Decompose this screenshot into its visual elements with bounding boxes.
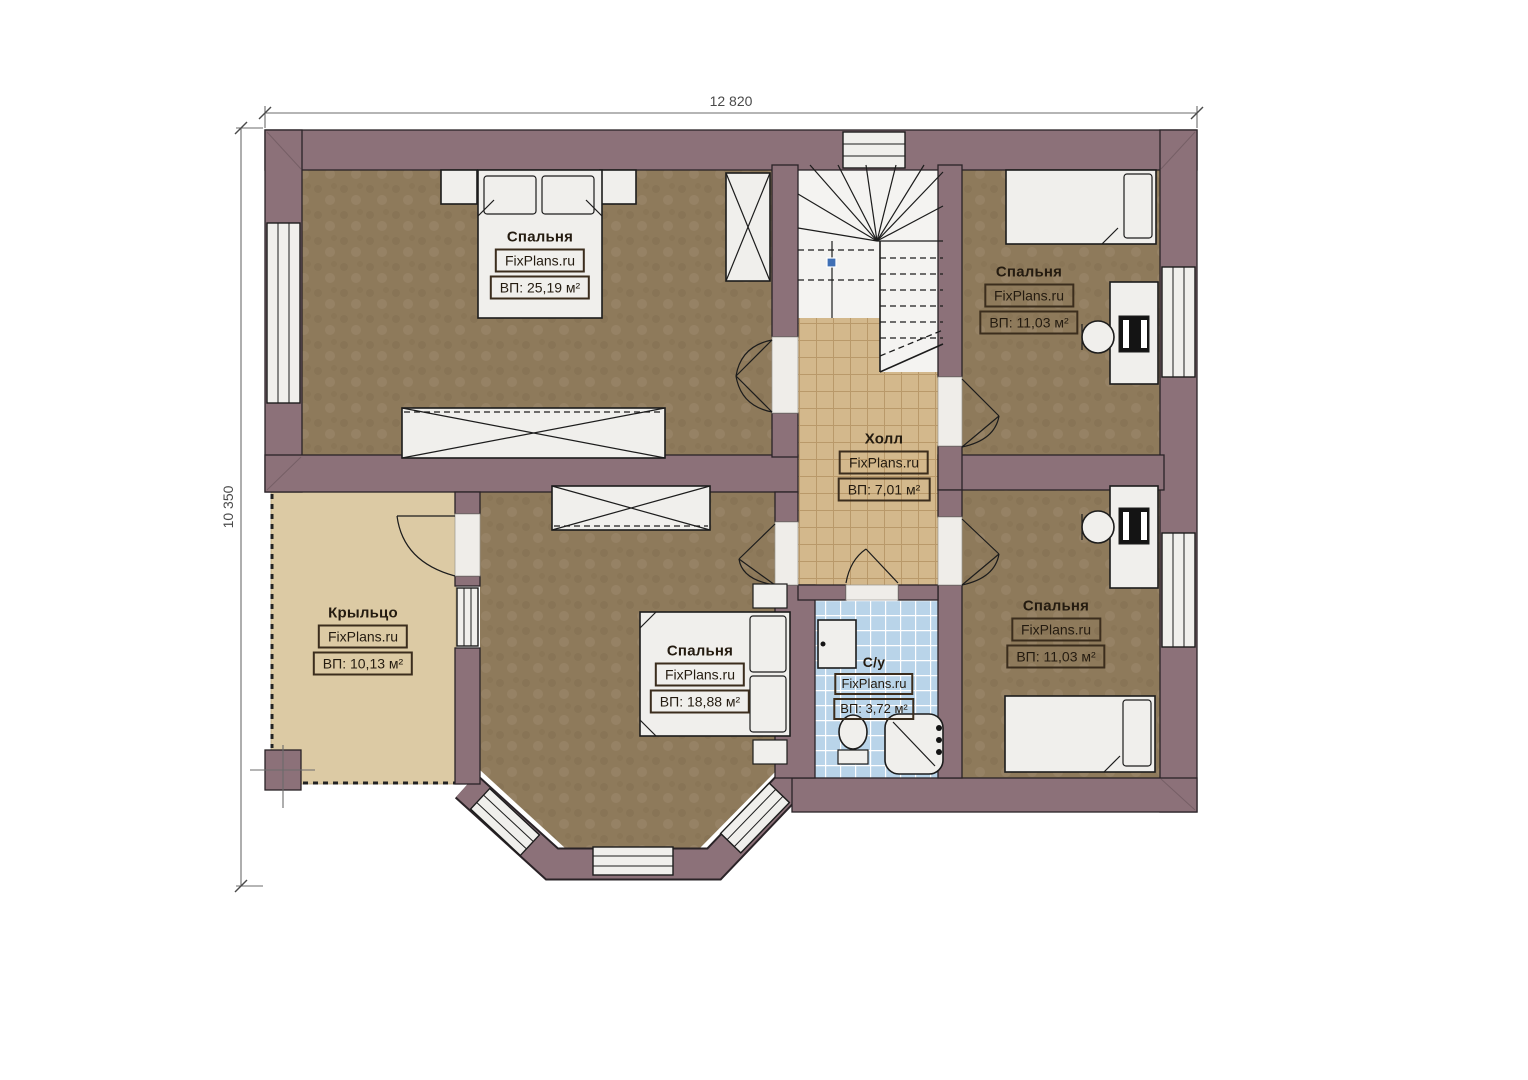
- room-name: Крыльцо: [328, 605, 398, 622]
- stair-handrail-marker: [827, 258, 836, 267]
- watermark: FixPlans.ru: [318, 625, 408, 649]
- wardrobe-bottom: [552, 486, 710, 530]
- wall-w2-mid: [938, 446, 962, 490]
- watermark: FixPlans.ru: [834, 673, 913, 695]
- wall-w3-upper: [775, 492, 798, 522]
- wall-right-bedrooms-divider: [938, 455, 1164, 490]
- dimension-top-label: 12 820: [710, 93, 753, 109]
- window-top-stairwell: [843, 132, 905, 168]
- room-area: ВП: 11,03 м²: [1006, 645, 1105, 669]
- floor-plan: 12 820 10 350 Спальня FixPlans.ru ВП: 25…: [0, 0, 1528, 1080]
- room-area: ВП: 7,01 м²: [838, 478, 931, 502]
- room-label-bedroom-top-right: Спальня FixPlans.ru ВП: 11,03 м²: [979, 264, 1078, 335]
- room-name: Холл: [865, 431, 903, 448]
- room-area: ВП: 11,03 м²: [979, 311, 1078, 335]
- watermark: FixPlans.ru: [655, 663, 745, 687]
- wardrobe-tall: [726, 173, 770, 281]
- single-bed-bottom-right: [1005, 696, 1155, 772]
- wall-bath-top-left: [798, 585, 846, 600]
- wall-w1-lower: [772, 413, 798, 457]
- wall-w4-a: [455, 492, 480, 514]
- shower: [885, 714, 943, 774]
- bay-window-center: [593, 847, 673, 875]
- watermark: FixPlans.ru: [1011, 618, 1101, 642]
- room-name: Спальня: [507, 229, 573, 246]
- room-name: Спальня: [1023, 598, 1089, 615]
- floor-plan-drawing: 12 820 10 350: [0, 0, 1528, 1080]
- dimension-left-label: 10 350: [220, 485, 236, 528]
- watermark: FixPlans.ru: [839, 451, 929, 475]
- room-label-bathroom: С/у FixPlans.ru ВП: 3,72 м²: [833, 654, 914, 720]
- room-name: Спальня: [667, 643, 733, 660]
- window-right-bottom: [1162, 533, 1195, 647]
- room-label-porch: Крыльцо FixPlans.ru ВП: 10,13 м²: [313, 605, 413, 676]
- wall-w4-b: [455, 576, 480, 586]
- toilet: [838, 715, 868, 764]
- room-area: ВП: 18,88 м²: [650, 690, 750, 714]
- room-name: Спальня: [996, 264, 1062, 281]
- room-name: С/у: [863, 654, 885, 670]
- window-right-top: [1162, 267, 1195, 377]
- desk-top-right: [1110, 282, 1158, 384]
- room-area: ВП: 25,19 м²: [490, 276, 590, 300]
- watermark: FixPlans.ru: [984, 284, 1074, 308]
- wall-w4-c: [455, 648, 480, 784]
- wall-top: [265, 130, 1197, 170]
- room-area: ВП: 10,13 м²: [313, 652, 413, 676]
- window-left-wall: [267, 223, 300, 403]
- wall-mid-horizontal: [265, 455, 798, 492]
- room-area: ВП: 3,72 м²: [833, 698, 914, 720]
- wardrobe-master: [402, 408, 665, 458]
- room-label-bedroom-bottom-right: Спальня FixPlans.ru ВП: 11,03 м²: [1006, 598, 1105, 669]
- chair-top-right: [1082, 321, 1114, 353]
- window-porch-bedroom: [457, 588, 478, 646]
- wall-w2-low1: [938, 490, 962, 517]
- chair-bottom-right: [1082, 511, 1114, 543]
- single-bed-top-right: [1006, 170, 1156, 244]
- wall-bath-top-right: [898, 585, 938, 600]
- wall-bottom: [792, 778, 1197, 812]
- room-label-hall: Холл FixPlans.ru ВП: 7,01 м²: [838, 431, 931, 502]
- wall-w1-upper: [772, 165, 798, 337]
- room-label-bedroom-master: Спальня FixPlans.ru ВП: 25,19 м²: [490, 229, 590, 300]
- wall-right: [1160, 130, 1197, 812]
- watermark: FixPlans.ru: [495, 249, 585, 273]
- desk-bottom-right: [1110, 486, 1158, 588]
- room-label-bedroom-bottom: Спальня FixPlans.ru ВП: 18,88 м²: [650, 643, 750, 714]
